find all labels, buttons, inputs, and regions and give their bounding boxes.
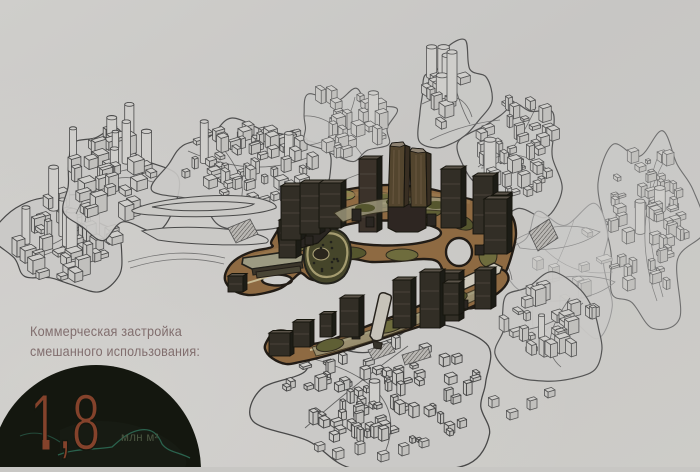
svg-text:1,8: 1,8: [30, 377, 100, 466]
svg-text:Коммерческая застройка: Коммерческая застройка: [30, 323, 182, 339]
svg-text:млн м²: млн м²: [121, 432, 159, 444]
svg-text:смешанного использования:: смешанного использования:: [30, 343, 200, 359]
